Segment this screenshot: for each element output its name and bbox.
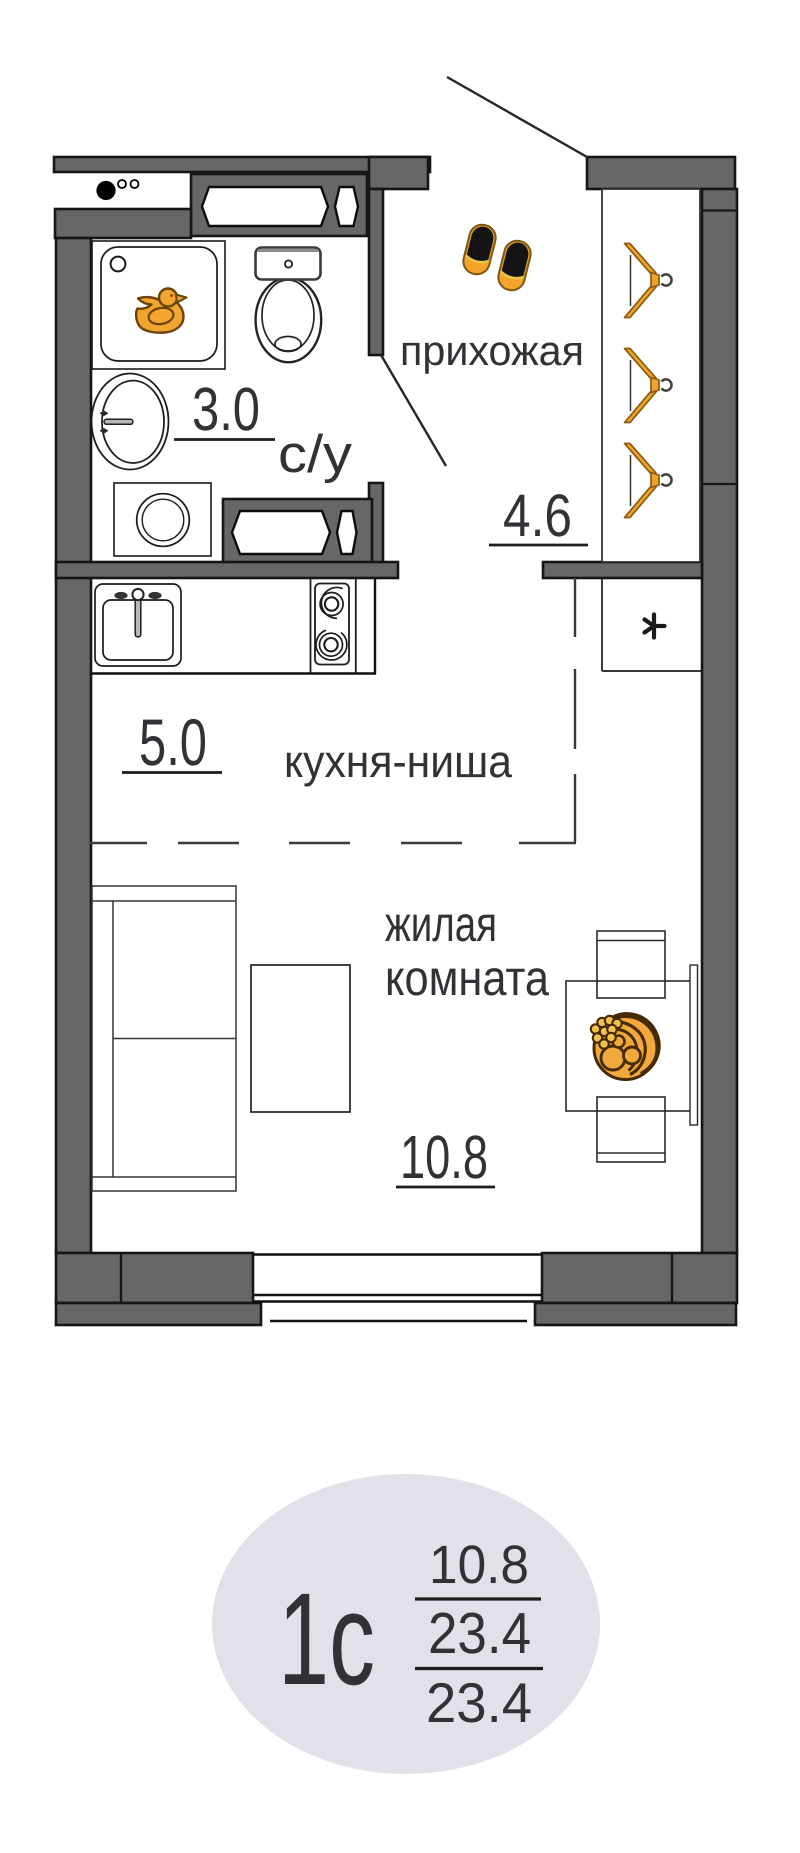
svg-text:10.8: 10.8 <box>400 1123 488 1191</box>
svg-text:жилая: жилая <box>385 896 497 952</box>
svg-text:5.0: 5.0 <box>139 705 207 779</box>
svg-text:3.0: 3.0 <box>192 375 260 443</box>
svg-text:10.8: 10.8 <box>429 1535 529 1595</box>
svg-text:кухня-ниша: кухня-ниша <box>284 735 512 787</box>
svg-text:4.6: 4.6 <box>503 482 572 549</box>
svg-text:с/у: с/у <box>278 425 353 484</box>
svg-text:прихожая: прихожая <box>400 327 584 374</box>
svg-text:1с: 1с <box>278 1565 375 1712</box>
svg-text:23.4: 23.4 <box>428 1601 531 1666</box>
svg-text:комната: комната <box>385 950 549 1006</box>
svg-text:23.4: 23.4 <box>426 1671 532 1734</box>
